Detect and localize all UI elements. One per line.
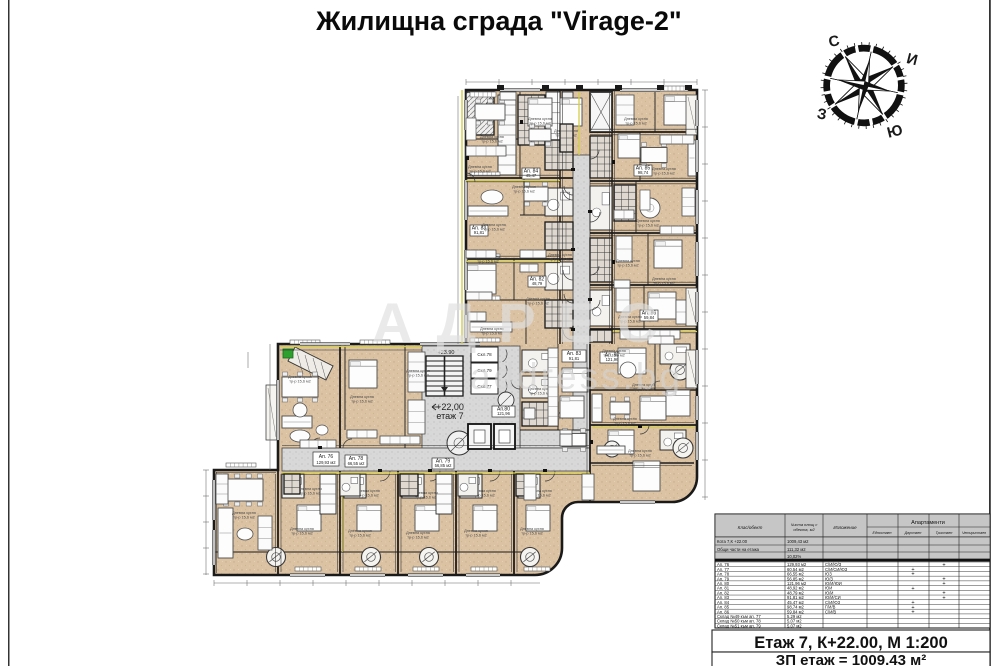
svg-text:+: + xyxy=(942,562,945,568)
svg-text:Дневна кухня: Дневна кухня xyxy=(528,117,552,121)
svg-text:Жилищна сграда "Virage-2": Жилищна сграда "Virage-2" xyxy=(315,6,681,36)
svg-text:тр-р 15,6 м2: тр-р 15,6 м2 xyxy=(289,380,310,384)
svg-text:+: + xyxy=(911,572,914,578)
svg-text:66,55 м2: 66,55 м2 xyxy=(348,461,366,466)
svg-text:тр-р 15,6 м2: тр-р 15,6 м2 xyxy=(469,170,490,174)
svg-text:1009,43 м2: 1009,43 м2 xyxy=(787,539,809,544)
svg-text:Дневна кухня: Дневна кухня xyxy=(290,527,314,531)
svg-text:Дневна кухня: Дневна кухня xyxy=(520,527,544,531)
svg-text:Дневна кухня: Дневна кухня xyxy=(406,369,430,373)
svg-text:+: + xyxy=(911,586,914,592)
svg-text:Изложение: Изложение xyxy=(833,525,857,530)
svg-text:Дневна кухня: Дневна кухня xyxy=(468,165,492,169)
svg-text:Дневна кухня: Дневна кухня xyxy=(628,449,652,453)
svg-text:Дневна кухня: Дневна кухня xyxy=(464,529,488,533)
svg-text:10,02%: 10,02% xyxy=(787,554,801,559)
svg-text:48,79: 48,79 xyxy=(532,281,543,286)
svg-text:С/И/В: С/И/В xyxy=(825,609,836,614)
svg-text:Дневна кухня: Дневна кухня xyxy=(652,277,676,281)
svg-text:Дневна кухня: Дневна кухня xyxy=(512,185,536,189)
svg-text:address.bg: address.bg xyxy=(470,356,683,397)
svg-text:121,96: 121,96 xyxy=(497,411,510,416)
svg-text:тр-р 15,6 м2: тр-р 15,6 м2 xyxy=(233,516,254,520)
svg-text:Дневна кухня: Дневна кухня xyxy=(406,531,430,535)
svg-text:тр-р 15,6 м2: тр-р 15,6 м2 xyxy=(481,140,502,144)
svg-text:АДРЕС: АДРЕС xyxy=(372,291,680,354)
svg-text:56,85 м2: 56,85 м2 xyxy=(435,463,453,468)
svg-text:тр-р 15,6 м2: тр-р 15,6 м2 xyxy=(637,224,658,228)
svg-text:Дневна кухня: Дневна кухня xyxy=(350,395,374,399)
svg-text:С: С xyxy=(827,32,841,51)
svg-text:Дневна кухня: Дневна кухня xyxy=(298,487,322,491)
svg-text:Клас/обект: Клас/обект xyxy=(738,525,763,530)
svg-text:Дневна кухня: Дневна кухня xyxy=(288,375,312,379)
svg-text:Двустаен: Двустаен xyxy=(904,531,922,535)
svg-text:тр-р 15,6 м2: тр-р 15,6 м2 xyxy=(614,422,635,426)
svg-text:тр-р 15,6 м2: тр-р 15,6 м2 xyxy=(617,264,638,268)
svg-text:Дневна кухня: Дневна кухня xyxy=(616,259,640,263)
svg-text:Апартаменти: Апартаменти xyxy=(911,520,945,526)
svg-text:Четиристаен: Четиристаен xyxy=(962,531,986,535)
svg-text:тр-р 15,6 м2: тр-р 15,6 м2 xyxy=(291,532,312,536)
svg-text:Дневна кухня: Дневна кухня xyxy=(480,135,504,139)
svg-text:45,47: 45,47 xyxy=(526,173,537,178)
svg-text:Дневна кухня: Дневна кухня xyxy=(613,417,637,421)
svg-text:129,93 м2: 129,93 м2 xyxy=(316,460,336,465)
svg-text:Етаж 7, К+22.00, М 1:200: Етаж 7, К+22.00, М 1:200 xyxy=(754,634,948,652)
svg-text:тр-р 15,6 м2: тр-р 15,6 м2 xyxy=(629,454,650,458)
svg-text:обекта, м2: обекта, м2 xyxy=(793,527,815,532)
svg-text:+: + xyxy=(942,581,945,587)
svg-text:етаж 7: етаж 7 xyxy=(436,411,463,421)
svg-text:тр-р 15,6 м2: тр-р 15,6 м2 xyxy=(407,536,428,540)
svg-text:тр-р 15,6 м2: тр-р 15,6 м2 xyxy=(529,122,550,126)
svg-text:98,74: 98,74 xyxy=(638,170,649,175)
svg-text:тр-р 15,6 м2: тр-р 15,6 м2 xyxy=(549,258,570,262)
svg-text:тр-р 15,6 м2: тр-р 15,6 м2 xyxy=(299,492,320,496)
svg-text:111,32 м2: 111,32 м2 xyxy=(787,547,806,552)
svg-text:З: З xyxy=(816,105,828,123)
svg-text:Дневна кухня: Дневна кухня xyxy=(348,529,372,533)
svg-text:тр-р 15,6 м2: тр-р 15,6 м2 xyxy=(513,190,534,194)
svg-text:Склад №51 към ап. 79: Склад №51 към ап. 79 xyxy=(717,623,761,628)
svg-text:ЗП етаж = 1009.43 м²: ЗП етаж = 1009.43 м² xyxy=(776,652,926,666)
svg-text:Ю: Ю xyxy=(885,122,904,142)
svg-text:+: + xyxy=(911,610,914,616)
svg-text:тр-р 15,6 м2: тр-р 15,6 м2 xyxy=(407,374,428,378)
svg-text:И: И xyxy=(905,50,920,69)
svg-text:Дневна кухня: Дневна кухня xyxy=(232,511,256,515)
svg-text:тр-р 15,6 м2: тр-р 15,6 м2 xyxy=(483,228,504,232)
svg-text:тр-р 15,6 м2: тр-р 15,6 м2 xyxy=(349,534,370,538)
svg-text:Дневна кухня: Дневна кухня xyxy=(482,223,506,227)
svg-text:Общи части на етажа: Общи части на етажа xyxy=(717,547,760,552)
svg-text:тр-р 15,6 м2: тр-р 15,6 м2 xyxy=(351,400,372,404)
svg-text:Кота 7,К +22.00: Кота 7,К +22.00 xyxy=(717,539,748,544)
svg-text:Тристаен: Тристаен xyxy=(936,531,953,535)
svg-text:Дневна кухня: Дневна кухня xyxy=(624,117,648,121)
svg-text:Дневна кухня: Дневна кухня xyxy=(652,167,676,171)
svg-text:Едностаен: Едностаен xyxy=(872,531,891,535)
svg-text:+: + xyxy=(942,595,945,601)
svg-text:тр-р 15,6 м2: тр-р 15,6 м2 xyxy=(625,122,646,126)
svg-text:тр-р 15,6 м2: тр-р 15,6 м2 xyxy=(521,532,542,536)
svg-text:тр-р 15,6 м2: тр-р 15,6 м2 xyxy=(653,172,674,176)
svg-text:Дневна кухня: Дневна кухня xyxy=(636,219,660,223)
svg-text:тр-р 15,6 м2: тр-р 15,6 м2 xyxy=(465,534,486,538)
svg-text:5,07 м2: 5,07 м2 xyxy=(787,623,802,628)
